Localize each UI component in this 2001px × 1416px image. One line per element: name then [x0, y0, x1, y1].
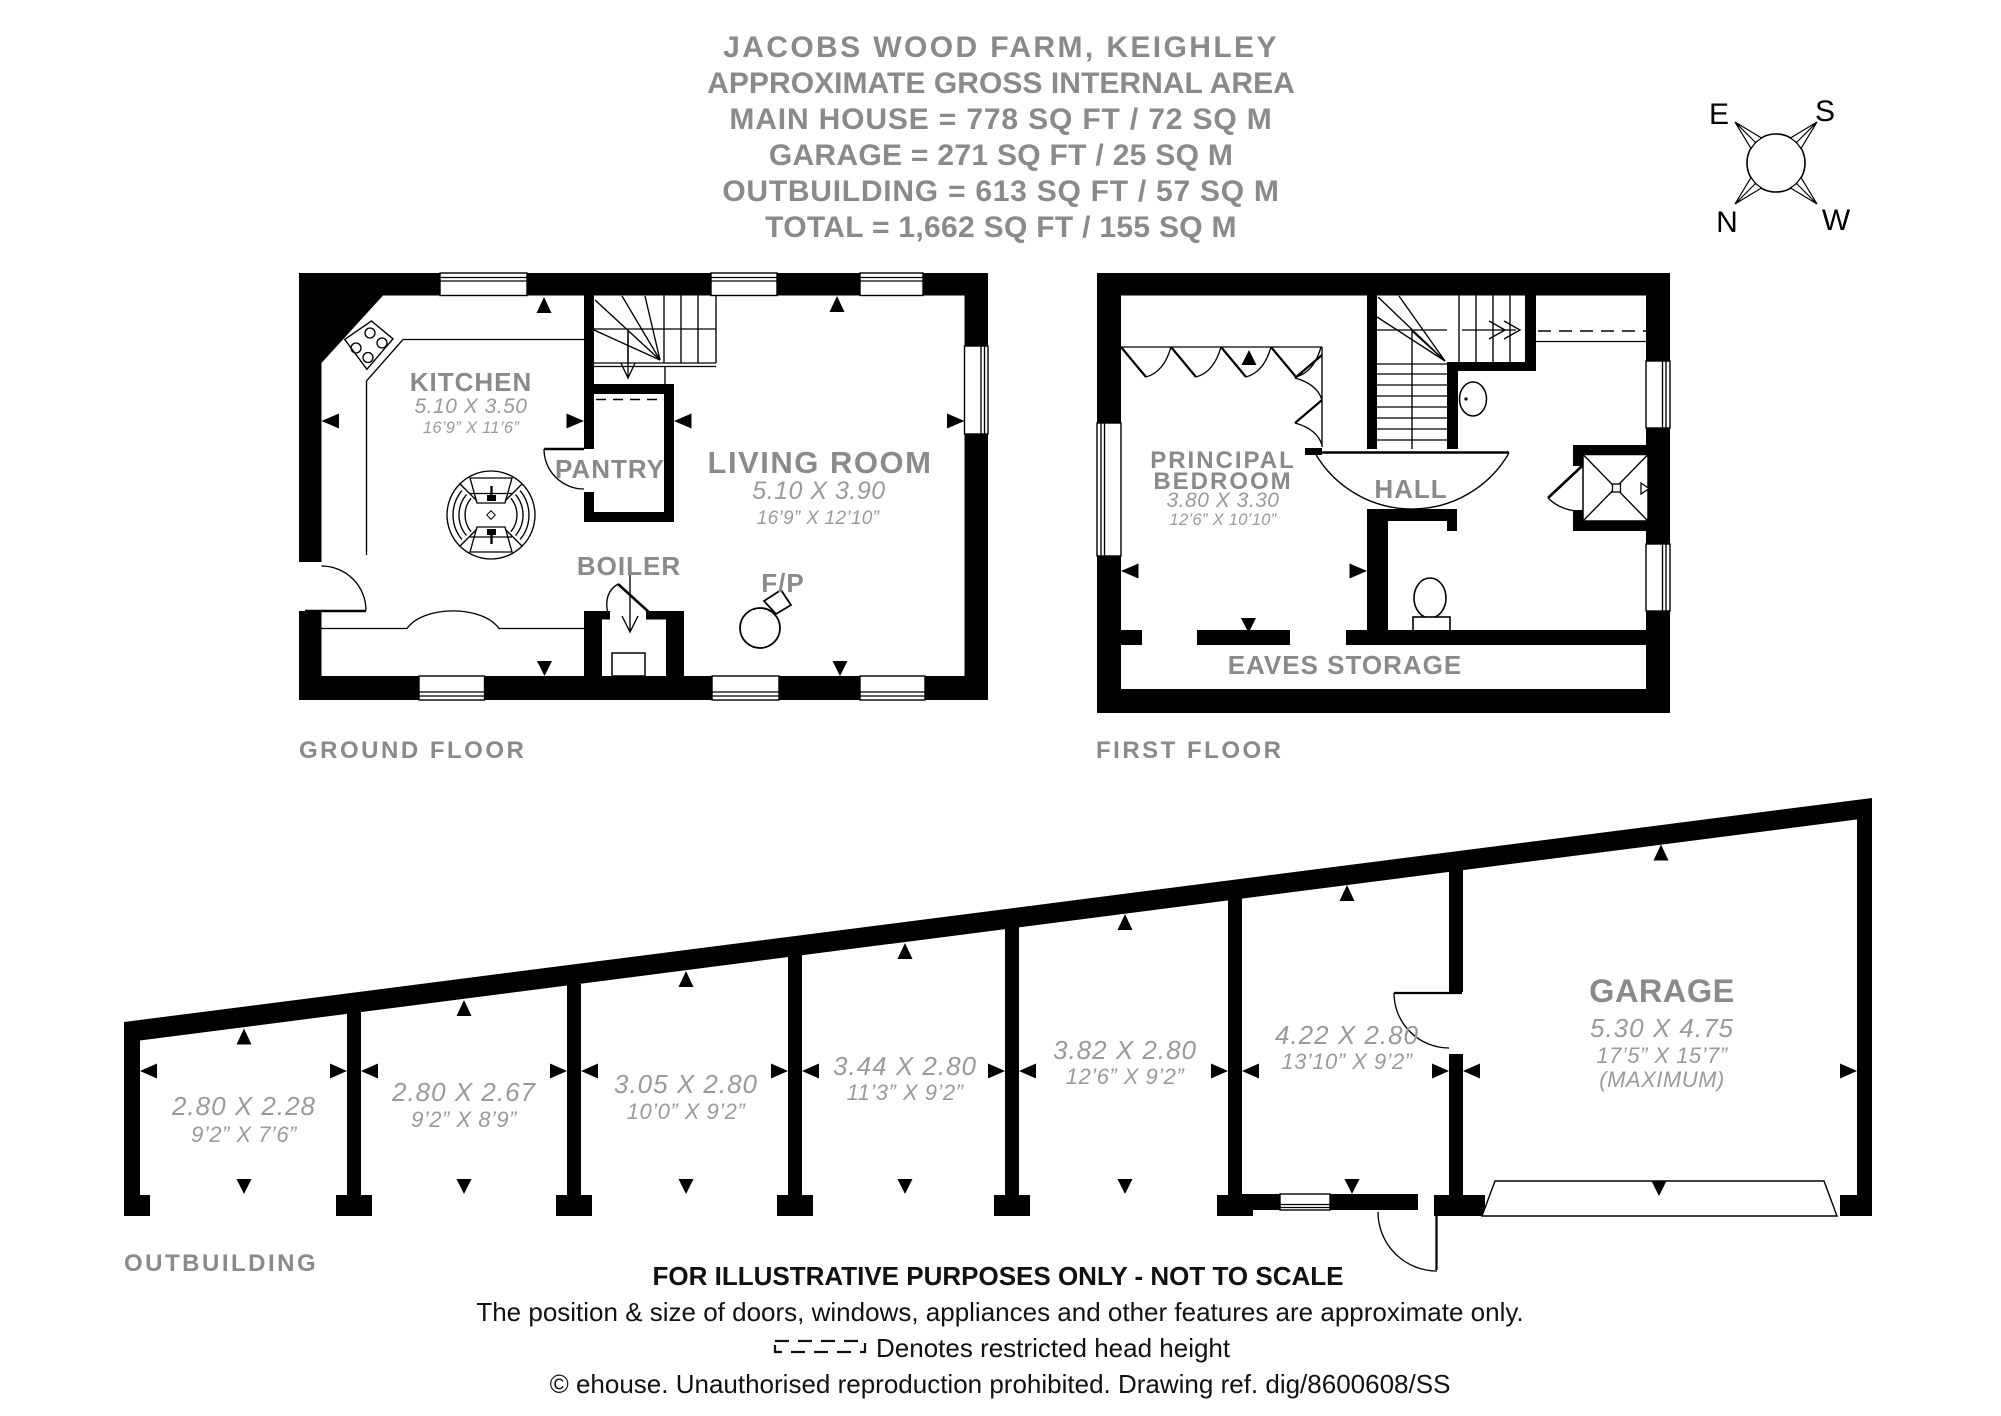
svg-text:12’6” X 9’2”: 12’6” X 9’2” [1066, 1064, 1186, 1089]
svg-text:S: S [1815, 95, 1835, 128]
svg-text:5.30 X 4.75: 5.30 X 4.75 [1590, 1013, 1734, 1043]
svg-text:FOR ILLUSTRATIVE PURPOSES ONLY: FOR ILLUSTRATIVE PURPOSES ONLY - NOT TO … [653, 1261, 1344, 1291]
svg-text:12’6” X 10’10”: 12’6” X 10’10” [1170, 511, 1278, 529]
svg-text:2.80 X 2.28: 2.80 X 2.28 [171, 1091, 316, 1121]
svg-text:5.10 X 3.90: 5.10 X 3.90 [752, 477, 885, 505]
svg-text:3.80 X 3.30: 3.80 X 3.30 [1167, 489, 1280, 512]
svg-text:FIRST FLOOR: FIRST FLOOR [1096, 737, 1283, 764]
svg-text:LIVING ROOM: LIVING ROOM [708, 445, 933, 480]
svg-text:16’9” X 11’6”: 16’9” X 11’6” [423, 419, 520, 437]
svg-text:3.05 X 2.80: 3.05 X 2.80 [614, 1069, 758, 1099]
svg-text:E: E [1709, 98, 1729, 131]
svg-text:4.22 X 2.80: 4.22 X 2.80 [1275, 1020, 1419, 1050]
svg-text:PANTRY: PANTRY [555, 454, 665, 484]
svg-text:3.44 X 2.80: 3.44 X 2.80 [833, 1051, 977, 1081]
svg-text:The position & size of doors,: The position & size of doors, windows, a… [476, 1297, 1523, 1327]
svg-text:BOILER: BOILER [577, 551, 681, 581]
svg-text:3.82 X 2.80: 3.82 X 2.80 [1053, 1035, 1197, 1065]
svg-text:HALL: HALL [1374, 474, 1447, 504]
svg-text:KITCHEN: KITCHEN [410, 367, 533, 397]
svg-text:F/P: F/P [761, 568, 804, 598]
svg-text:W: W [1822, 204, 1851, 237]
svg-text:Denotes restricted head height: Denotes restricted head height [876, 1333, 1231, 1363]
svg-text:10’0” X 9’2”: 10’0” X 9’2” [627, 1099, 747, 1124]
svg-text:APPROXIMATE GROSS INTERNAL ARE: APPROXIMATE GROSS INTERNAL AREA [707, 67, 1295, 100]
svg-text:2.80 X 2.67: 2.80 X 2.67 [391, 1077, 537, 1107]
svg-text:11’3” X 9’2”: 11’3” X 9’2” [847, 1080, 965, 1105]
svg-text:9’2” X 7’6”: 9’2” X 7’6” [191, 1122, 298, 1147]
svg-text:JACOBS WOOD FARM, KEIGHLEY: JACOBS WOOD FARM, KEIGHLEY [723, 31, 1279, 64]
svg-text:© ehouse. Unauthorised reprodu: © ehouse. Unauthorised reproduction proh… [550, 1369, 1451, 1399]
svg-text:16’9” X 12’10”: 16’9” X 12’10” [757, 508, 881, 529]
svg-text:GARAGE: GARAGE [1589, 973, 1735, 1009]
svg-text:GROUND FLOOR: GROUND FLOOR [299, 737, 526, 764]
svg-text:5.10 X 3.50: 5.10 X 3.50 [415, 395, 528, 418]
svg-text:TOTAL = 1,662 SQ FT / 155 SQ M: TOTAL = 1,662 SQ FT / 155 SQ M [765, 211, 1237, 244]
svg-text:OUTBUILDING: OUTBUILDING [124, 1250, 318, 1277]
svg-text:MAIN HOUSE = 778 SQ FT / 72 SQ: MAIN HOUSE = 778 SQ FT / 72 SQ M [729, 103, 1272, 136]
svg-text:13’10” X 9’2”: 13’10” X 9’2” [1281, 1049, 1413, 1074]
svg-text:EAVES STORAGE: EAVES STORAGE [1228, 650, 1463, 680]
svg-text:GARAGE = 271 SQ FT / 25 SQ M: GARAGE = 271 SQ FT / 25 SQ M [769, 139, 1233, 172]
svg-text:(MAXIMUM): (MAXIMUM) [1599, 1067, 1724, 1092]
svg-text:N: N [1716, 206, 1738, 239]
svg-text:OUTBUILDING = 613 SQ FT / 57 S: OUTBUILDING = 613 SQ FT / 57 SQ M [722, 175, 1279, 208]
svg-text:9’2” X 8’9”: 9’2” X 8’9” [411, 1107, 518, 1132]
svg-text:17’5” X 15’7”: 17’5” X 15’7” [1596, 1043, 1728, 1068]
